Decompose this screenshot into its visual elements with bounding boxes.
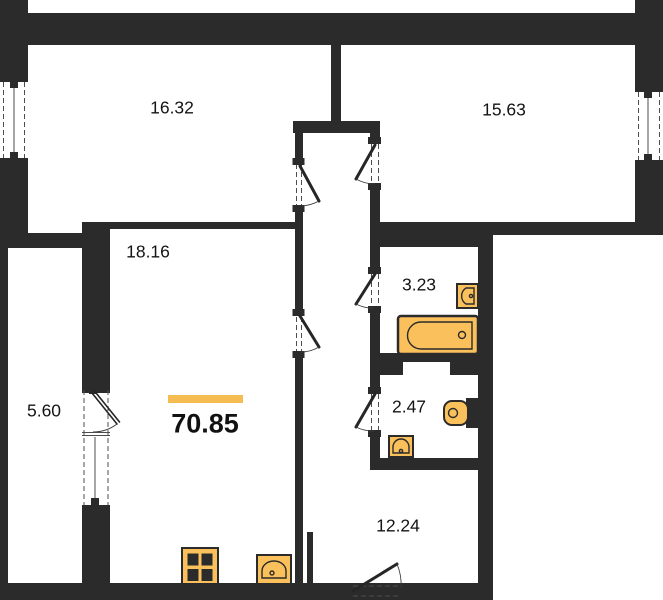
door-bathroom <box>356 267 381 313</box>
stove-body <box>182 548 218 584</box>
area-label-top-left-room: 16.32 <box>150 98 194 119</box>
stove <box>182 548 218 584</box>
wall-balcony-kitchen-thick <box>82 222 110 393</box>
stove-burner-3 <box>188 569 199 581</box>
stove-burner-4 <box>202 569 213 581</box>
kitchen-sink <box>257 555 291 584</box>
door-wc <box>356 387 381 437</box>
window-right-tick-top <box>644 92 652 98</box>
wall-balcony-left <box>0 248 8 600</box>
door-room2-block-top <box>368 137 381 144</box>
wall-top-left-corner <box>0 0 28 82</box>
door-room1-leaf <box>300 166 319 201</box>
wall-corridor-left-b <box>295 208 303 315</box>
wall-right-lower <box>478 235 493 600</box>
window-right-tick-bottom <box>644 154 652 160</box>
stove-burner-2 <box>202 554 213 566</box>
area-label-living-room: 18.16 <box>126 242 170 263</box>
window-right <box>639 92 660 160</box>
wall-kitchen-stub <box>307 532 313 583</box>
wall-bottom <box>0 583 493 600</box>
wall-top <box>28 13 635 45</box>
door-living-leaf <box>300 316 319 347</box>
wall-room2-bottom <box>370 222 663 235</box>
door-living <box>293 309 320 358</box>
floor-plan-drawing <box>0 0 663 600</box>
wall-balcony-kitchen-lower <box>82 505 110 600</box>
stove-burner-1 <box>188 554 199 566</box>
wall-corridor-left-c <box>295 353 303 583</box>
door-room2-leaf <box>356 145 375 179</box>
area-label-wc: 2.47 <box>392 397 426 418</box>
door-wc-leaf <box>356 394 375 427</box>
balcony-window-tick-bottom <box>91 498 99 505</box>
area-label-top-right-room: 15.63 <box>482 100 526 121</box>
total-area-underline <box>168 395 243 403</box>
door-bathroom-block-bottom <box>368 306 381 313</box>
wall-room1-room2-divider <box>331 45 341 121</box>
total-area-label: 70.85 <box>171 409 239 440</box>
wc-sink <box>389 436 413 457</box>
wall-top-right-corner <box>635 0 663 92</box>
bathroom-sink <box>457 284 478 308</box>
balcony-door-arc <box>93 424 117 432</box>
wall-bathroom-top <box>380 235 490 247</box>
balcony-door-leaf-2 <box>95 391 120 422</box>
toilet-bowl <box>444 401 468 425</box>
door-bathroom-leaf <box>356 274 375 304</box>
window-left-tick-top <box>10 82 18 88</box>
balcony-door-window <box>82 388 120 505</box>
area-label-bathroom: 3.23 <box>402 275 436 296</box>
door-living-block-top <box>293 309 305 316</box>
area-label-hall: 12.24 <box>376 516 420 537</box>
bathtub <box>398 316 478 354</box>
area-label-balcony: 5.60 <box>27 401 61 422</box>
window-left <box>4 82 25 158</box>
wall-corridor-right-c <box>370 308 380 393</box>
balcony-door-leaf-1 <box>92 393 117 424</box>
door-room2 <box>356 137 381 190</box>
wall-wc-bottom <box>370 458 490 470</box>
duct-shaft <box>403 362 450 375</box>
wall-left-below-window <box>0 158 28 233</box>
wall-room1-living <box>82 222 303 229</box>
wall-hallway-top <box>293 121 380 133</box>
door-room1-block-top <box>293 158 305 165</box>
door-room1 <box>293 158 320 212</box>
window-left-tick-bottom <box>10 152 18 158</box>
toilet <box>444 398 478 428</box>
wall-corridor-right-b <box>370 187 380 273</box>
floor-plan: 16.32 15.63 18.16 3.23 2.47 5.60 12.24 7… <box>0 0 663 600</box>
door-entrance-block-right <box>401 583 409 600</box>
